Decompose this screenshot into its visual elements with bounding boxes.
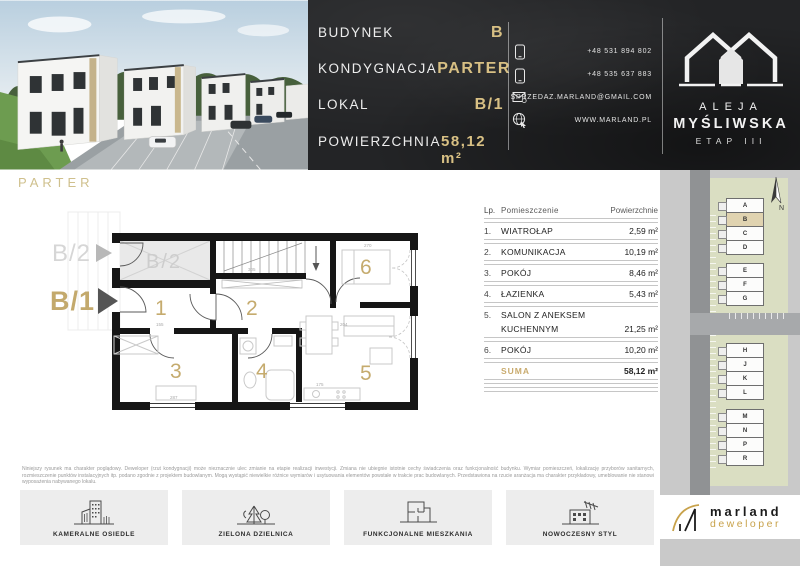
room-number-1: 1: [155, 297, 167, 320]
feature-label: ZIELONA DZIELNICA: [219, 531, 294, 538]
header-name: Pomieszczenie: [501, 206, 610, 215]
table-divider: [484, 379, 658, 384]
row-name: POKÓJ: [501, 268, 629, 278]
table-row: 2. KOMUNIKACJA 10,19 m²: [484, 244, 658, 260]
room-number-3: 3: [170, 360, 182, 383]
floorplan-icon: [396, 498, 440, 528]
developer-logo-band: marland deweloper: [660, 495, 800, 539]
building-cell-k: K: [726, 371, 764, 386]
building-cell-c: C: [726, 226, 764, 241]
feature-card-funkcjonalne-mieszkania: FUNKCJONALNE MIESZKANIA: [344, 490, 492, 545]
building-cell-a: A: [726, 198, 764, 213]
b2-zone-label: B/2: [146, 251, 182, 273]
room-number-2: 2: [246, 297, 258, 320]
total-area: 58,12 m²: [624, 366, 658, 376]
row-no: 1.: [484, 226, 501, 236]
header-panel: BUDYNEK B KONDYGNACJA PARTER LOKAL B/1 P…: [308, 0, 800, 170]
phone-number-1[interactable]: +48 531 894 802: [587, 48, 652, 55]
header-area: Powierzchnie: [610, 206, 658, 215]
building-cell-l: L: [726, 385, 764, 400]
building-cell-e: E: [726, 263, 764, 278]
estate-name-line3: ETAP III: [662, 136, 800, 146]
dim-label: 287: [170, 395, 178, 400]
total-label: SUMA: [501, 366, 624, 376]
dim-label: 175: [316, 382, 324, 387]
building-cell-p: P: [726, 437, 764, 452]
dim-label: 305: [248, 267, 256, 272]
developer-name: marland: [710, 505, 782, 518]
header-divider-1: [508, 22, 509, 150]
brochure-page: BUDYNEK B KONDYGNACJA PARTER LOKAL B/1 P…: [0, 0, 800, 566]
estate-name-line1: ALEJA: [662, 101, 800, 113]
kondygnacja-value: PARTER: [437, 60, 511, 78]
estate-name-line2: MYŚLIWSKA: [662, 116, 800, 132]
powierzchnia-value: 58,12 m²: [441, 133, 504, 167]
header-no: Lp.: [484, 206, 501, 215]
row-no: 5.: [484, 310, 501, 320]
table-row: 1. WIATROŁAP 2,59 m²: [484, 223, 658, 239]
building-cell-j: J: [726, 357, 764, 372]
floor-label: PARTER: [18, 175, 94, 190]
parking-spaces-horizontal: [724, 313, 784, 319]
table-header: Lp. Pomieszczenie Powierzchnie: [484, 204, 658, 218]
phone-number-2[interactable]: +48 535 637 883: [587, 71, 652, 78]
row-area: 10,20 m²: [624, 345, 658, 355]
row-name: POKÓJ: [501, 345, 624, 355]
estate-logo: ALEJA MYŚLIWSKA ETAP III: [662, 0, 800, 170]
trees-icon: [234, 498, 278, 528]
dim-label: 155: [156, 322, 164, 327]
building-cell-g: G: [726, 291, 764, 306]
feature-card-nowoczesny-styl: NOWOCZESNY STYL: [506, 490, 654, 545]
marland-monogram-icon: [668, 499, 704, 535]
dim-label: 270: [364, 243, 372, 248]
row-name: KOMUNIKACJA: [501, 247, 624, 257]
building-cell-d: D: [726, 240, 764, 255]
wardrobe: [222, 280, 302, 288]
b2-entry-arrow-icon: [96, 244, 112, 262]
kondygnacja-label: KONDYGNACJA: [318, 61, 437, 76]
row-no: 4.: [484, 289, 501, 299]
feature-card-zielona-dzielnica: ZIELONA DZIELNICA: [182, 490, 330, 545]
row-name-line2: KUCHENNYM: [501, 324, 624, 334]
building-cell-b-highlighted: B: [726, 212, 764, 227]
table-row: 5. SALON Z ANEKSEM KUCHENNYM 21,25 m²: [484, 307, 658, 337]
info-row-budynek: BUDYNEK B: [318, 24, 504, 42]
stairs: [224, 241, 320, 273]
table-divider: [484, 387, 658, 392]
modern-house-icon: [558, 498, 602, 528]
phone-icon-2: [514, 68, 526, 84]
row-no: 3.: [484, 268, 501, 278]
rooms-table: Lp. Pomieszczenie Powierzchnie 1. WIATRO…: [484, 204, 658, 392]
globe-icon: [512, 112, 528, 128]
unit-b1-label: B/1: [50, 286, 95, 316]
feature-label: FUNKCJONALNE MIESZKANIA: [363, 531, 473, 538]
row-name: SALON Z ANEKSEM: [501, 310, 624, 320]
budynek-value: B: [491, 24, 504, 42]
building-cell-h: H: [726, 343, 764, 358]
row-no: 6.: [484, 345, 501, 355]
row-name: ŁAZIENKA: [501, 289, 629, 299]
feature-label: NOWOCZESNY STYL: [543, 531, 618, 538]
row-area: 21,25 m²: [624, 324, 658, 334]
disclaimer-text: Niniejszy rysunek ma charakter poglądowy…: [22, 466, 654, 486]
feature-label: KAMERALNE OSIEDLE: [53, 531, 135, 538]
north-arrow-icon: N: [763, 176, 789, 212]
row-name: WIATROŁAP: [501, 226, 629, 236]
table-row: 3. POKÓJ 8,46 m²: [484, 265, 658, 281]
row-area: 10,19 m²: [624, 247, 658, 257]
building-render-image: [0, 0, 308, 170]
houses-logo-icon: [679, 22, 783, 92]
info-row-lokal: LOKAL B/1: [318, 96, 504, 114]
table-total-row: SUMA 58,12 m²: [484, 363, 658, 379]
powierzchnia-label: POWIERZCHNIA: [318, 134, 441, 149]
table-row: 4. ŁAZIENKA 5,43 m²: [484, 286, 658, 302]
info-row-powierzchnia: POWIERZCHNIA 58,12 m²: [318, 133, 504, 167]
north-label: N: [779, 205, 784, 212]
lokal-label: LOKAL: [318, 97, 369, 112]
site-plan-sidebar: N A B C D E F G H J K L M N P R marland …: [660, 170, 800, 566]
row-no: 2.: [484, 247, 501, 257]
table-row: 6. POKÓJ 10,20 m²: [484, 342, 658, 358]
building-cell-n: N: [726, 423, 764, 438]
info-row-kondygnacja: KONDYGNACJA PARTER: [318, 60, 504, 78]
row-area: 5,43 m²: [629, 289, 658, 299]
lokal-value: B/1: [475, 96, 504, 114]
phone-icon: [514, 44, 526, 60]
website-url[interactable]: WWW.MARLAND.PL: [575, 117, 652, 124]
room-number-6: 6: [360, 256, 372, 279]
email-address[interactable]: SPRZEDAZ.MARLAND@GMAIL.COM: [511, 94, 652, 101]
floor-plan: B/2 B/1 B/2: [0, 198, 480, 433]
building-cell-m: M: [726, 409, 764, 424]
building-cell-f: F: [726, 277, 764, 292]
room-number-4: 4: [256, 360, 268, 383]
developer-subtitle: deweloper: [710, 518, 782, 530]
dim-label: 204: [340, 322, 348, 327]
buildings-icon: [72, 498, 116, 528]
feature-card-kameralne-osiedle: KAMERALNE OSIEDLE: [20, 490, 168, 545]
row-area: 2,59 m²: [629, 226, 658, 236]
building-cell-r: R: [726, 451, 764, 466]
budynek-label: BUDYNEK: [318, 25, 394, 40]
row-area: 8,46 m²: [629, 268, 658, 278]
room-number-5: 5: [360, 362, 372, 385]
unit-b2-label: B/2: [52, 240, 91, 267]
parking-spaces: [710, 210, 716, 470]
